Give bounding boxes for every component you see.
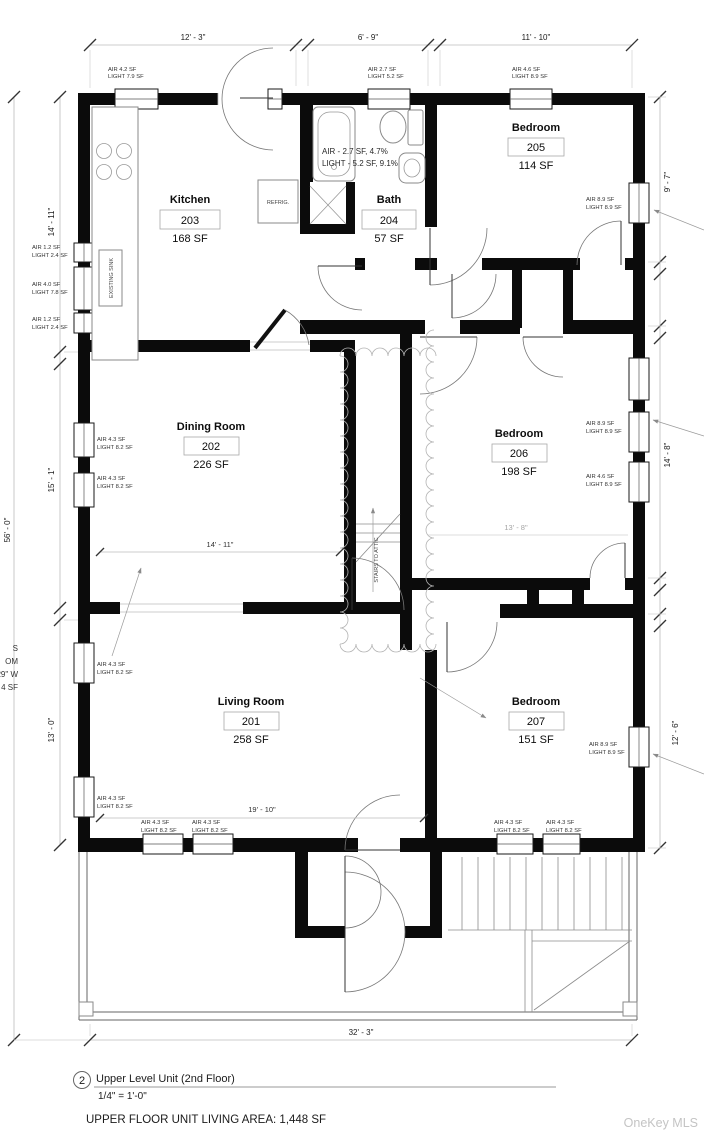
wall <box>625 258 633 270</box>
edge-text-fragment: 4 SF <box>1 683 18 692</box>
window-label-air: AIR 4.2 SF <box>108 67 137 73</box>
dim-text: 9' - 7" <box>663 172 672 193</box>
room-number: 202 <box>202 441 220 453</box>
dim-text: 32' - 3" <box>349 1028 374 1037</box>
wall <box>78 93 645 105</box>
window-label-air: AIR 2.7 SF <box>368 67 397 73</box>
dim-text: 56' - 0" <box>3 517 12 542</box>
title-block: 2 Upper Level Unit (2nd Floor) 1/4" = 1'… <box>74 1072 699 1131</box>
room-area: 258 SF <box>233 734 269 746</box>
room-number: 204 <box>380 215 398 227</box>
dim-text: 19' - 10" <box>248 805 276 814</box>
floor-plan-canvas: Kitchen 203 168 SF Bath 204 57 SF Bedroo… <box>0 0 704 1136</box>
cloud <box>340 644 436 652</box>
room-name: Dining Room <box>177 421 246 433</box>
window-label-air: AIR 4.3 SF <box>97 796 126 802</box>
dim-text: 15' - 1" <box>47 467 56 492</box>
drawing-scale: 1/4" = 1'-0" <box>98 1091 147 1102</box>
room-name: Bedroom <box>512 696 561 708</box>
bath-sink <box>399 153 425 183</box>
window-label-air: AIR 8.9 SF <box>586 197 615 203</box>
dim-text: 11' - 10" <box>522 33 551 42</box>
bath-note-line1: AIR - 2.7 SF, 4.7% <box>322 147 388 156</box>
door-arc <box>318 266 362 310</box>
wall <box>425 650 437 838</box>
porch-post <box>623 1002 637 1016</box>
wall <box>295 852 308 938</box>
wall <box>425 105 437 227</box>
window-label-air: AIR 8.9 SF <box>589 742 618 748</box>
wall <box>300 105 313 182</box>
wall <box>295 926 345 938</box>
dim-text: 14' - 11" <box>47 208 56 237</box>
window-label-light: LIGHT 8.9 SF <box>589 750 625 756</box>
wall <box>90 602 120 614</box>
leader-line <box>653 420 704 436</box>
porch-and-stairs <box>79 852 637 1020</box>
window-label-light: LIGHT 8.2 SF <box>97 670 133 676</box>
room-labels: Kitchen 203 168 SF Bath 204 57 SF Bedroo… <box>160 122 564 746</box>
wall <box>300 224 355 234</box>
room-number: 205 <box>527 142 545 154</box>
window-label-light: LIGHT 8.9 SF <box>512 74 548 80</box>
wall <box>625 578 633 590</box>
window-label-light: LIGHT 8.2 SF <box>546 828 582 834</box>
stair-rail-diagonal <box>534 941 630 1010</box>
wall <box>563 320 633 334</box>
edge-text-fragment: S <box>13 644 18 653</box>
drawing-title: Upper Level Unit (2nd Floor) <box>96 1073 235 1085</box>
existing-sink-label: EXISTING SINK <box>109 258 115 298</box>
door-arc <box>590 543 625 578</box>
door-arc <box>420 337 477 394</box>
window-label-air: AIR 4.3 SF <box>546 820 575 826</box>
door-arc <box>345 872 405 992</box>
window-label-air: AIR 4.0 SF <box>32 282 61 288</box>
living-area-note: UPPER FLOOR UNIT LIVING AREA: 1,448 SF <box>86 1114 326 1126</box>
window-label-air: AIR 4.6 SF <box>512 67 541 73</box>
window-label-air: AIR 4.3 SF <box>141 820 170 826</box>
window-label-air: AIR 4.3 SF <box>97 437 126 443</box>
refrigerator-label: REFRIG. <box>267 200 290 206</box>
porch-post <box>79 1002 93 1016</box>
door-arc <box>345 856 381 928</box>
dim-text: 12' - 6" <box>671 720 680 745</box>
toilet-tank <box>408 110 423 145</box>
stairs-to-attic-label: STAIRS TO ATTIC <box>374 537 380 582</box>
windows <box>74 89 649 854</box>
room-number: 206 <box>510 448 528 460</box>
door-arc <box>452 274 496 318</box>
dim-text: 6' - 9" <box>358 33 379 42</box>
wall <box>563 270 573 328</box>
window-label-light: LIGHT 8.9 SF <box>586 429 622 435</box>
dim-text: 12' - 3" <box>181 33 206 42</box>
room-area: 198 SF <box>501 466 537 478</box>
window-label-air: AIR 4.3 SF <box>192 820 221 826</box>
window-label-light: LIGHT 8.2 SF <box>192 828 228 834</box>
bath-note-line2: LIGHT - 5.2 SF, 9.1% <box>322 159 398 168</box>
wall <box>400 320 412 650</box>
window-label-light: LIGHT 8.2 SF <box>141 828 177 834</box>
room-area: 57 SF <box>374 233 404 245</box>
door-opening <box>218 92 268 106</box>
dim-text: 14' - 8" <box>663 442 672 467</box>
wall <box>412 578 590 590</box>
wall <box>460 320 520 334</box>
window-label-light: LIGHT 8.2 SF <box>97 804 133 810</box>
wall <box>482 258 580 270</box>
watermark: OneKey MLS <box>624 1116 698 1130</box>
window-label-light: LIGHT 2.4 SF <box>32 253 68 259</box>
room-name: Living Room <box>218 696 285 708</box>
edge-text-fragment: OM <box>5 657 18 666</box>
window-label-light: LIGHT 8.9 SF <box>586 205 622 211</box>
window-label-air: AIR 8.9 SF <box>586 421 615 427</box>
dim-text-faded: 13' - 8" <box>504 523 528 532</box>
window-label-air: AIR 4.3 SF <box>97 476 126 482</box>
wall <box>512 270 522 328</box>
room-name: Bath <box>377 194 402 206</box>
window-label-air: AIR 4.6 SF <box>586 474 615 480</box>
room-name: Kitchen <box>170 194 211 206</box>
detail-number: 2 <box>79 1075 85 1087</box>
room-number: 207 <box>527 716 545 728</box>
window-label-light: LIGHT 7.8 SF <box>32 290 68 296</box>
dim-text: 13' - 0" <box>47 717 56 742</box>
window-label-light: LIGHT 7.9 SF <box>108 74 144 80</box>
window-label-air: AIR 4.3 SF <box>494 820 523 826</box>
toilet-bowl <box>380 111 406 143</box>
cloud <box>426 330 434 650</box>
room-area: 168 SF <box>172 233 208 245</box>
window-label-light: LIGHT 8.2 SF <box>97 445 133 451</box>
window-label-light: LIGHT 2.4 SF <box>32 325 68 331</box>
room-number: 203 <box>181 215 199 227</box>
leader-line <box>653 754 704 774</box>
window-label-light: LIGHT 8.9 SF <box>586 482 622 488</box>
window-label-air: AIR 1.2 SF <box>32 317 61 323</box>
window-label-light: LIGHT 5.2 SF <box>368 74 404 80</box>
window-label-light: LIGHT 8.2 SF <box>97 484 133 490</box>
leader-line <box>654 210 704 230</box>
wall <box>310 340 355 352</box>
wall <box>500 604 633 618</box>
room-area: 114 SF <box>519 160 554 172</box>
door-arc <box>447 622 497 672</box>
wall <box>430 852 442 938</box>
room-name: Bedroom <box>512 122 561 134</box>
dim-text: 14' - 11" <box>207 540 234 549</box>
room-area: 226 SF <box>193 459 229 471</box>
room-number: 201 <box>242 716 260 728</box>
room-name: Bedroom <box>495 428 544 440</box>
wall <box>355 258 365 270</box>
window-label-air: AIR 4.3 SF <box>97 662 126 668</box>
door-arc <box>430 228 487 285</box>
door-arc <box>577 221 621 265</box>
door-arc <box>523 337 563 377</box>
kitchen-counter <box>92 107 138 360</box>
edge-text-fragment: 29" W <box>0 670 18 679</box>
wall <box>243 602 412 614</box>
room-area: 151 SF <box>518 734 554 746</box>
window-label-air: AIR 1.2 SF <box>32 245 61 251</box>
window-label-light: LIGHT 8.2 SF <box>494 828 530 834</box>
wall <box>415 258 437 270</box>
